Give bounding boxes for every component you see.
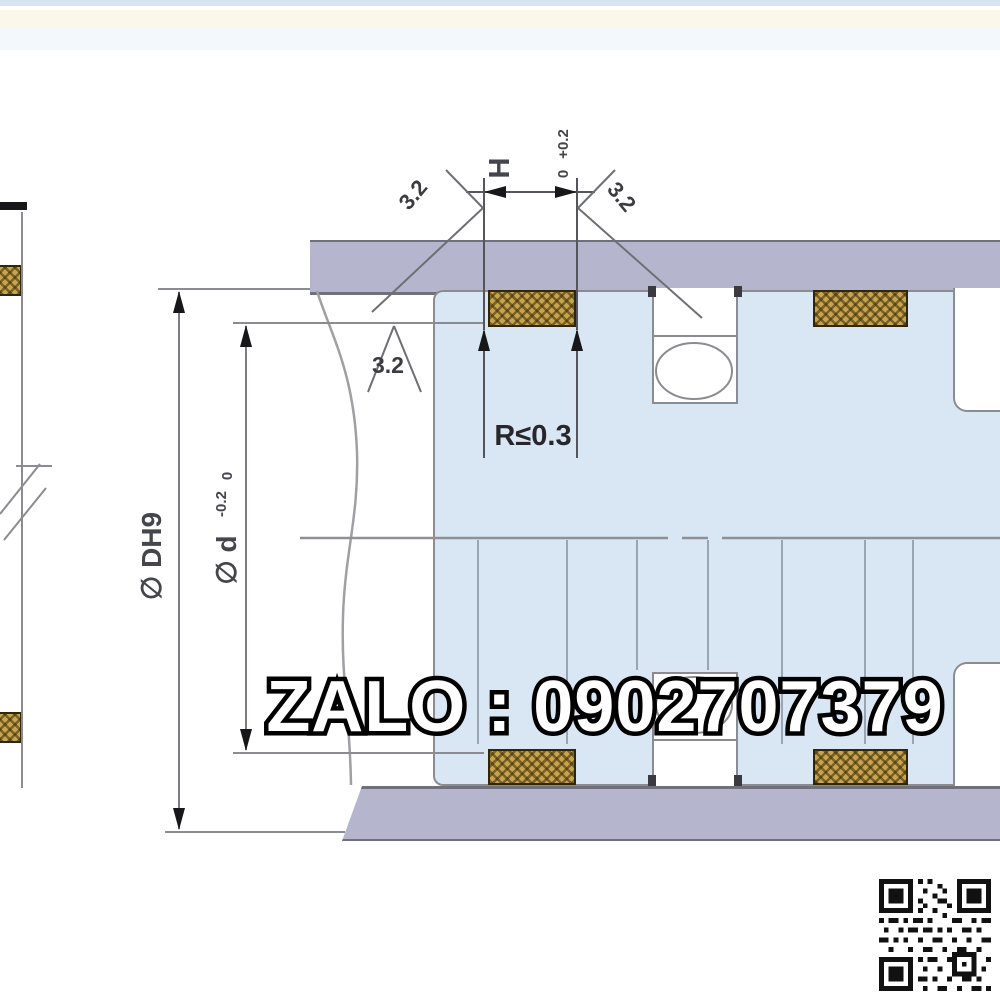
seal-top-left <box>488 290 576 327</box>
piston-step-notch-top <box>953 288 1000 412</box>
roughness-value-groove-root: 3.2 <box>372 352 404 379</box>
top-fade-strip <box>0 28 1000 50</box>
cylinder-wall-bottom <box>342 786 1000 841</box>
seal-top-right <box>813 290 908 327</box>
qr-code-icon <box>874 874 996 996</box>
top-cream-strip <box>0 10 1000 28</box>
screenshot-root: { "background": { "top_strip_color": "#d… <box>0 0 1000 1000</box>
corner-radius-note: R≤0.3 <box>478 420 588 453</box>
groove-width-label: H <box>482 136 518 200</box>
seal-bottom-left <box>488 749 576 785</box>
groove-diameter-tol-lower: -0.2 <box>213 485 229 523</box>
oring-groove-top <box>652 288 738 404</box>
ring-view-band-top <box>0 265 22 296</box>
top-blue-strip <box>0 0 1000 6</box>
roughness-value-left-wall: 3.2 <box>394 175 434 215</box>
roughness-value-right-wall: 3.2 <box>602 177 642 217</box>
cylinder-wall-top <box>310 240 1000 295</box>
bore-diameter-label: ∅ DH9 <box>135 481 169 631</box>
ring-view-band-bottom <box>0 712 22 743</box>
watermark: ZALO : 0902707379 <box>210 664 1000 750</box>
seal-bottom-right <box>813 749 908 785</box>
groove-width-tol-lower: 0 <box>555 155 571 193</box>
ring-view-break-mark <box>4 488 46 540</box>
ring-view-break-mark <box>0 464 40 514</box>
ring-view-dim-tick <box>0 202 27 210</box>
